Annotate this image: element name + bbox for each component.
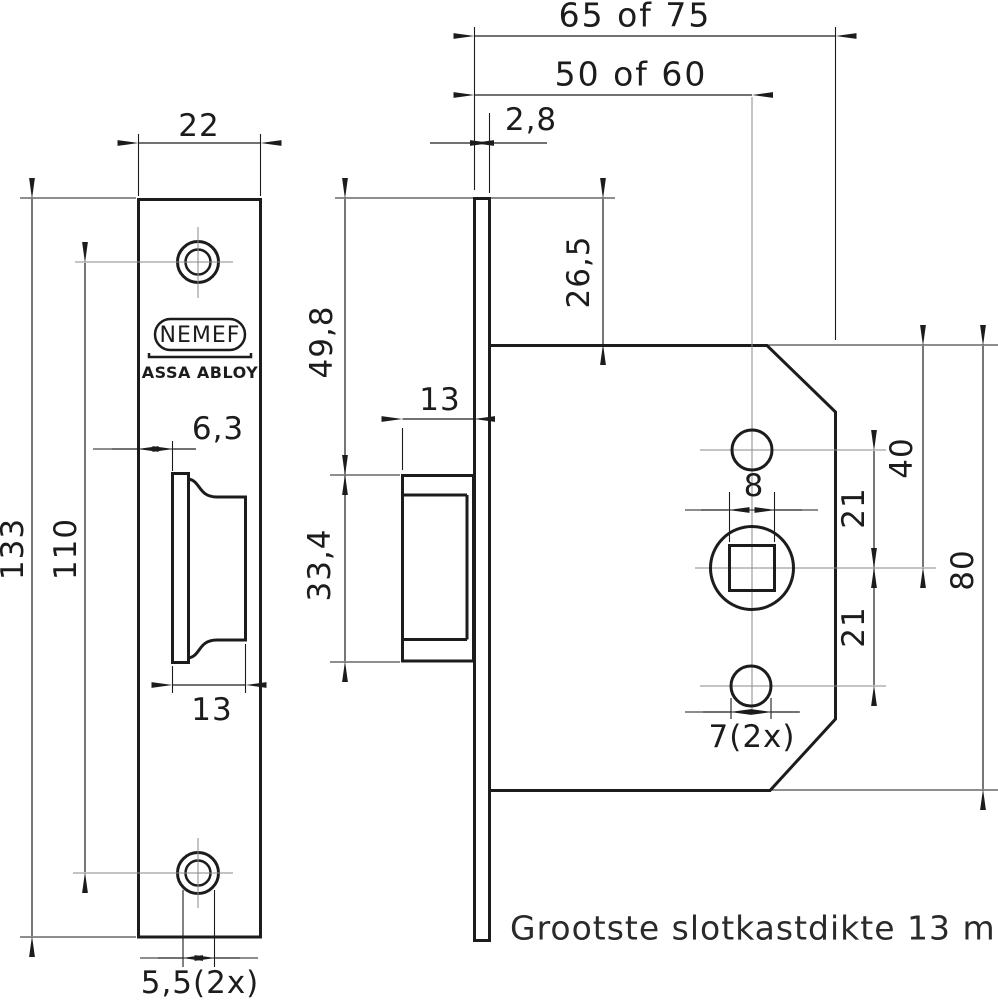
dim-side-top-to-bolt: 49,8	[304, 199, 345, 474]
dim-front-bolt-offset: 6,3	[93, 411, 244, 471]
bolt-front-head	[189, 479, 246, 658]
dim-side-bolt-depth: 13	[403, 382, 475, 470]
dim-hole-below-spindle-label: 21	[836, 606, 872, 647]
dim-front-bolt-width-label: 13	[191, 692, 232, 728]
technical-drawing: NEMEF ASSA ABLOY 22 133 110 6,3 13	[0, 0, 998, 1000]
nemef-logo: NEMEF ASSA ABLOY	[142, 319, 258, 382]
dim-backset: 50 of 60	[475, 55, 753, 96]
bolt-side-outline	[403, 476, 474, 662]
dim-spindle-square-label: 8	[744, 468, 765, 504]
bolt-front-bar	[173, 474, 189, 663]
dim-case-height: 80	[945, 346, 983, 789]
dim-side-bolt-height: 33,4	[302, 475, 400, 662]
faceplate-outline	[139, 200, 261, 938]
dim-case-depth-label: 65 of 75	[559, 0, 712, 35]
dim-case-height-label: 80	[945, 549, 981, 590]
dim-front-screw-holes: 5,5(2x)	[140, 890, 259, 1000]
drawing-note: Grootste slotkastdikte 13 mm	[510, 909, 998, 948]
dim-front-bolt-offset-label: 6,3	[192, 411, 244, 447]
dim-spindle-from-top-label: 40	[884, 437, 920, 478]
dim-front-bolt-width: 13	[173, 644, 246, 728]
dim-front-hole-spacing-label: 110	[48, 518, 84, 580]
dim-front-height-label: 133	[0, 518, 31, 580]
dim-front-width-label: 22	[178, 108, 219, 144]
dim-case-holes-label: 7(2x)	[709, 719, 796, 755]
dim-case-depth: 65 of 75	[475, 0, 836, 340]
dim-side-plate-thickness-label: 2,8	[505, 102, 557, 138]
front-view: NEMEF ASSA ABLOY	[73, 200, 261, 938]
dim-side-top-to-bolt-label: 49,8	[304, 305, 340, 378]
dim-case-top-margin: 26,5	[561, 199, 603, 344]
lock-dimension-drawing: NEMEF ASSA ABLOY 22 133 110 6,3 13	[0, 0, 998, 1000]
dim-case-top-margin-label: 26,5	[561, 235, 597, 308]
dim-hole-below-spindle: 21	[836, 569, 874, 685]
logo-underline	[149, 353, 251, 357]
dim-spindle-from-top: 40	[884, 346, 923, 567]
dim-front-hole-spacing: 110	[48, 263, 85, 872]
dim-side-bolt-height-label: 33,4	[302, 528, 338, 601]
subbrand-text: ASSA ABLOY	[142, 363, 258, 382]
dim-hole-above-spindle: 21	[836, 451, 874, 567]
dim-front-screw-holes-label: 5,5(2x)	[141, 965, 260, 1000]
dim-front-width: 22	[139, 108, 261, 196]
case-view	[490, 97, 998, 791]
dim-hole-above-spindle-label: 21	[836, 487, 872, 528]
faceplate-side-strip	[475, 199, 490, 941]
dim-case-holes: 7(2x)	[685, 698, 800, 755]
brand-text: NEMEF	[160, 323, 241, 348]
dim-side-bolt-depth-label: 13	[419, 382, 460, 418]
dim-backset-label: 50 of 60	[555, 55, 708, 94]
dim-side-plate-thickness: 2,8	[430, 102, 557, 193]
